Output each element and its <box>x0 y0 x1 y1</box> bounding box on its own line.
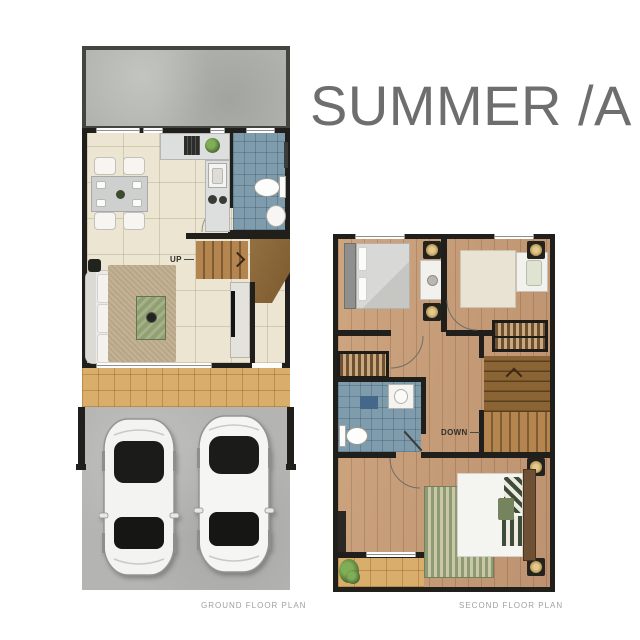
stairs-down-lower <box>484 412 550 454</box>
bathroom-wall <box>421 377 426 434</box>
interior-wall <box>186 233 290 239</box>
door-swing <box>447 300 477 330</box>
dining-chair <box>94 212 116 230</box>
down-text: DOWN <box>441 428 468 437</box>
leader-line <box>184 259 194 260</box>
master-headboard <box>523 469 536 561</box>
second-floor-plan-label: SECOND FLOOR PLAN <box>459 601 563 610</box>
kitchen-plant <box>205 138 220 153</box>
pillow <box>526 260 542 286</box>
fence-post-cap <box>76 464 86 470</box>
green-blanket <box>498 498 514 520</box>
bathroom-wall <box>333 377 426 382</box>
up-text: UP <box>170 255 182 264</box>
ceiling-lamp <box>423 303 441 321</box>
window <box>494 234 534 239</box>
interior-wall <box>250 282 255 363</box>
window <box>96 128 140 133</box>
bed-headboard <box>344 243 356 309</box>
page-title: SUMMER /A <box>310 78 632 134</box>
ground-floor-plan-label: GROUND FLOOR PLAN <box>201 601 306 610</box>
tv <box>231 291 235 337</box>
toilet <box>254 178 280 197</box>
up-label: UP <box>170 255 194 264</box>
interior-wall <box>421 452 553 458</box>
stairs-down-upper <box>484 356 550 412</box>
wash-basin <box>266 205 286 227</box>
window <box>366 552 416 557</box>
patio <box>82 46 290 130</box>
dining-table <box>91 176 148 212</box>
toilet-tank <box>279 176 286 198</box>
master-bed <box>457 473 523 557</box>
window <box>355 234 405 239</box>
burner <box>208 195 217 204</box>
toilet <box>346 427 368 445</box>
door-swing <box>390 458 420 488</box>
console <box>338 511 346 557</box>
decor-bowl <box>146 312 157 323</box>
floorplan-image: SUMMER /A UP <box>0 0 640 640</box>
dining-chair <box>123 157 145 175</box>
interior-wall <box>446 330 492 336</box>
ceiling-lamp <box>527 241 545 259</box>
fence-post <box>287 407 294 467</box>
pillow <box>358 277 367 301</box>
interior-wall <box>479 330 484 358</box>
striped-throw <box>502 516 522 546</box>
bathroom-shelf <box>284 142 288 168</box>
wash-basin <box>388 384 414 409</box>
down-label: DOWN <box>441 428 480 437</box>
plant <box>88 259 101 272</box>
balcony-plant <box>346 570 360 584</box>
wardrobe <box>492 320 548 352</box>
door-swing <box>391 336 423 368</box>
centerpiece <box>116 190 125 199</box>
ceiling-lamp <box>423 241 441 259</box>
dining-chair <box>123 212 145 230</box>
interior-wall <box>333 330 391 336</box>
porch <box>82 368 290 407</box>
sofa-back <box>86 271 96 363</box>
wardrobe <box>337 351 389 379</box>
lamp <box>427 275 438 286</box>
pillow <box>358 247 367 271</box>
fence-post <box>78 407 85 467</box>
car-right <box>194 414 274 574</box>
stove <box>184 136 200 155</box>
burner <box>219 196 227 204</box>
interior-wall <box>479 410 484 458</box>
bath-mat <box>360 396 378 409</box>
kitchen-sink <box>208 163 227 188</box>
leader-line <box>470 432 480 433</box>
fence-post-cap <box>286 464 296 470</box>
toilet-tank <box>339 425 346 447</box>
bathroom-wall <box>333 452 396 458</box>
car-left <box>99 417 179 577</box>
dining-chair <box>94 157 116 175</box>
